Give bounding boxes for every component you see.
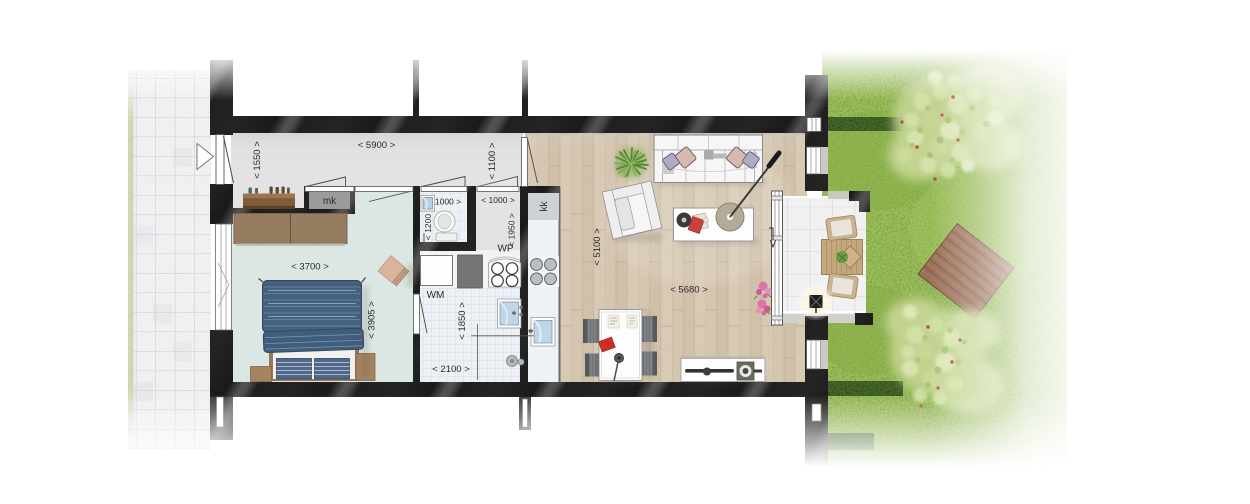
svg-text:< 5900 >: < 5900 > (358, 140, 396, 151)
svg-text:WP: WP (497, 244, 513, 255)
svg-text:< 1850 >: < 1850 > (457, 302, 468, 340)
svg-text:< 3905 >: < 3905 > (367, 301, 378, 339)
svg-text:WM: WM (427, 290, 445, 301)
svg-text:< 1950 >: < 1950 > (507, 213, 517, 247)
svg-text:< 5100 >: < 5100 > (592, 228, 603, 266)
svg-text:< 2100 >: < 2100 > (432, 364, 470, 375)
svg-text:< 5680 >: < 5680 > (670, 285, 708, 296)
svg-text:< 1550 >: < 1550 > (252, 141, 263, 179)
svg-text:1000 >: 1000 > (435, 197, 461, 207)
svg-text:< 3700 >: < 3700 > (291, 262, 329, 273)
svg-text:kk: kk (539, 201, 550, 212)
svg-text:mk: mk (323, 196, 336, 207)
svg-text:< 1000 >: < 1000 > (481, 195, 515, 205)
svg-text:< 1100 >: < 1100 > (487, 142, 498, 179)
svg-text:< 1200: < 1200 (423, 214, 433, 241)
